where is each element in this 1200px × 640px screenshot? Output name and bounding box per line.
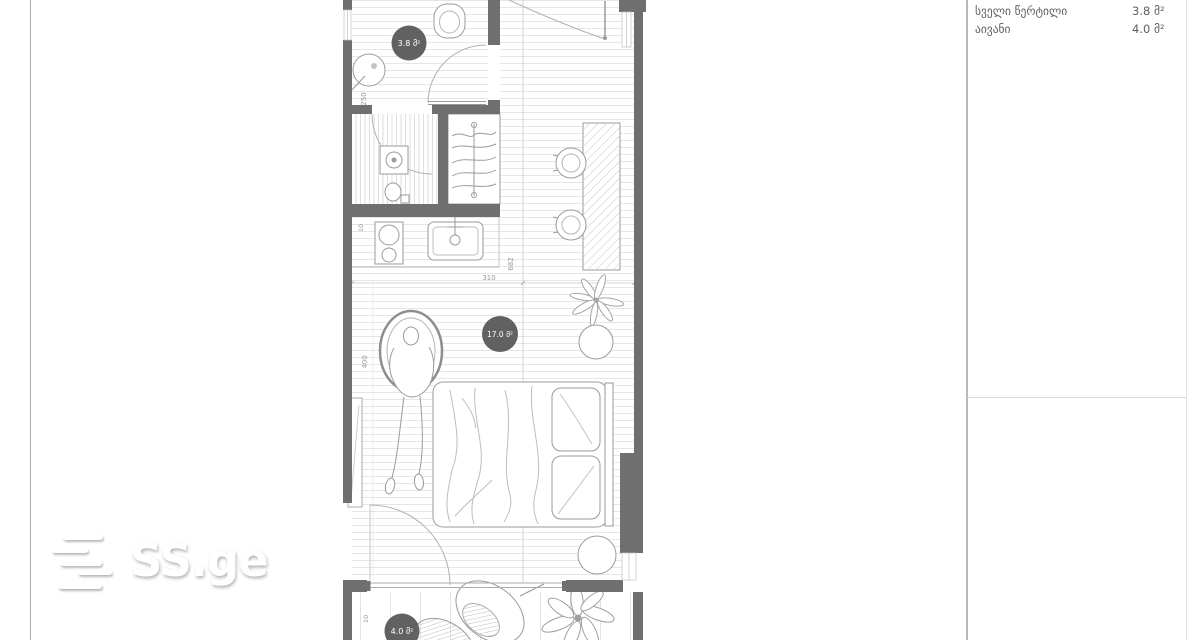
page-border-line — [30, 0, 31, 640]
wardrobe — [448, 114, 500, 204]
dim-250: 250 — [360, 92, 368, 105]
wc — [385, 183, 401, 201]
wall — [432, 105, 500, 114]
wall — [619, 0, 646, 12]
wall — [343, 40, 352, 503]
dim-682: 682 — [507, 257, 515, 270]
ssge-watermark: SS.ge — [50, 528, 250, 598]
pillow — [552, 456, 600, 519]
wall — [620, 453, 643, 553]
wall — [634, 12, 643, 453]
floor-plan: 3.8 მ² 17.0 მ² 4.0 მ² 250 10 310 682 400… — [336, 0, 656, 640]
pillow — [552, 388, 600, 451]
legend-row: სველი წერტილი 3.8 მ² — [975, 2, 1180, 20]
wall — [343, 592, 352, 640]
dim-310: 310 — [482, 274, 495, 282]
logo-bar — [78, 570, 112, 575]
badge-bathroom-label: 3.8 მ² — [398, 38, 421, 48]
wall — [488, 0, 500, 45]
wall — [633, 592, 643, 640]
wall — [343, 0, 352, 10]
side-table — [578, 536, 616, 574]
badge-living-label: 17.0 მ² — [487, 330, 513, 339]
wall — [343, 580, 367, 592]
legend-label-balcony: აივანი — [975, 22, 1011, 36]
legend-value-bathroom: 3.8 მ² — [1132, 2, 1165, 20]
legend-row-separator — [967, 397, 1186, 398]
logo-bar — [52, 548, 88, 553]
logo-bar — [63, 534, 103, 540]
legend-right-border — [1186, 0, 1187, 640]
shower — [353, 54, 385, 86]
wall — [352, 204, 500, 217]
ssge-logo-text: SS.ge — [130, 534, 268, 587]
person-head — [404, 327, 419, 345]
dim-10-balcony: 10 — [362, 615, 370, 623]
pouf — [579, 325, 613, 359]
wall — [438, 114, 448, 204]
dim-400: 400 — [361, 355, 369, 368]
legend-value-balcony: 4.0 მ² — [1132, 20, 1165, 38]
dim-10-kitchen: 10 — [357, 224, 365, 232]
legend-left-border — [966, 0, 968, 640]
logo-bar — [58, 583, 102, 589]
cooktop — [375, 222, 403, 264]
badge-balcony-label: 4.0 მ² — [391, 626, 414, 636]
legend-row: აივანი 4.0 მ² — [975, 20, 1180, 38]
headboard — [605, 383, 613, 526]
legend-label-bathroom: სველი წერტილი — [975, 4, 1067, 18]
logo-bar — [60, 560, 102, 566]
wall — [566, 580, 623, 592]
bed — [433, 382, 613, 527]
